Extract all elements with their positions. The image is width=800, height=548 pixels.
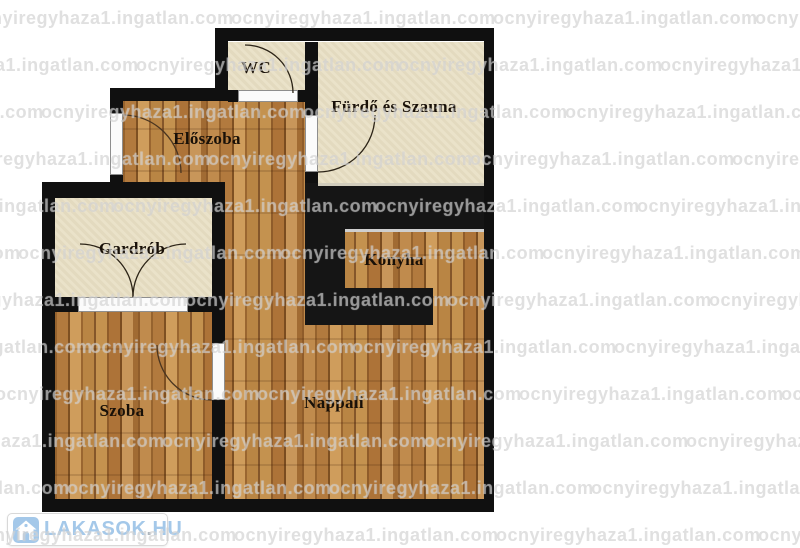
watermark-text: ocnyiregyhaza1.ingatlan.com: [162, 431, 427, 452]
watermark-text: ocnyiregyhaza1.ingatlan.com: [542, 243, 800, 264]
watermark-layer: ocnyiregyhaza1.ingatlan.comocnyiregyhaza…: [0, 0, 800, 548]
watermark-text: ocnyiregyhaza1.ingatlan.com: [755, 8, 800, 29]
watermark-text: ocnyiregyhaza1.ingatlan.com: [591, 478, 800, 499]
watermark-text: ocnyiregyhaza1.ingatlan.com: [257, 384, 522, 405]
watermark-text: ocnyiregyhaza1.ingatlan.com: [493, 8, 758, 29]
watermark-text: ocnyiregyhaza1.ingatlan.com: [0, 431, 165, 452]
floor-plan-image: WC Fürdő és Szauna Előszoba Gardrób Kony…: [0, 0, 800, 548]
watermark-text: ocnyiregyhaza1.ingatlan.com: [686, 431, 800, 452]
watermark-text: ocnyiregyhaza1.ingatlan.com: [113, 196, 378, 217]
watermark-text: ocnyiregyhaza1.ingatlan.com: [709, 290, 800, 311]
watermark-text: ocnyiregyhaza1.ingatlan.com: [280, 243, 545, 264]
watermark-text: ocnyiregyhaza1.ingatlan.com: [329, 478, 594, 499]
watermark-text: ocnyiregyhaza1.ingatlan.com: [424, 431, 689, 452]
watermark-text: ocnyiregyhaza1.ingatlan.com: [0, 196, 116, 217]
watermark-text: ocnyiregyhaza1.ingatlan.com: [231, 8, 496, 29]
watermark-text: ocnyiregyhaza1.ingatlan.com: [0, 55, 139, 76]
watermark-text: ocnyiregyhaza1.ingatlan.com: [519, 384, 784, 405]
watermark-text: ocnyiregyhaza1.ingatlan.com: [0, 337, 93, 358]
watermark-text: ocnyiregyhaza1.ingatlan.com: [234, 525, 499, 546]
watermark-text: ocnyiregyhaza1.ingatlan.com: [398, 55, 663, 76]
watermark-text: ocnyiregyhaza1.ingatlan.com: [0, 384, 260, 405]
watermark-text: ocnyiregyhaza1.ingatlan.com: [0, 102, 44, 123]
watermark-text: ocnyiregyhaza1.ingatlan.com: [0, 290, 188, 311]
watermark-text: ocnyiregyhaza1.ingatlan.com: [352, 337, 617, 358]
watermark-text: ocnyiregyhaza1.ingatlan.com: [732, 149, 800, 170]
watermark-text: ocnyiregyhaza1.ingatlan.com: [41, 102, 306, 123]
watermark-text: ocnyiregyhaza1.ingatlan.com: [208, 149, 473, 170]
watermark-text: ocnyiregyhaza1.ingatlan.com: [0, 525, 237, 546]
watermark-text: ocnyiregyhaza1.ingatlan.com: [136, 55, 401, 76]
watermark-text: ocnyiregyhaza1.ingatlan.com: [496, 525, 761, 546]
watermark-text: ocnyiregyhaza1.ingatlan.com: [637, 196, 800, 217]
watermark-text: ocnyiregyhaza1.ingatlan.com: [470, 149, 735, 170]
watermark-text: ocnyiregyhaza1.ingatlan.com: [758, 525, 800, 546]
watermark-text: ocnyiregyhaza1.ingatlan.com: [0, 149, 211, 170]
watermark-text: ocnyiregyhaza1.ingatlan.com: [660, 55, 800, 76]
watermark-text: ocnyiregyhaza1.ingatlan.com: [447, 290, 712, 311]
watermark-text: ocnyiregyhaza1.ingatlan.com: [18, 243, 283, 264]
watermark-text: ocnyiregyhaza1.ingatlan.com: [375, 196, 640, 217]
watermark-text: ocnyiregyhaza1.ingatlan.com: [0, 478, 70, 499]
watermark-text: ocnyiregyhaza1.ingatlan.com: [565, 102, 800, 123]
watermark-text: ocnyiregyhaza1.ingatlan.com: [781, 384, 800, 405]
watermark-text: ocnyiregyhaza1.ingatlan.com: [90, 337, 355, 358]
watermark-text: ocnyiregyhaza1.ingatlan.com: [67, 478, 332, 499]
watermark-text: ocnyiregyhaza1.ingatlan.com: [0, 8, 234, 29]
watermark-text: ocnyiregyhaza1.ingatlan.com: [185, 290, 450, 311]
watermark-text: ocnyiregyhaza1.ingatlan.com: [614, 337, 800, 358]
watermark-text: ocnyiregyhaza1.ingatlan.com: [303, 102, 568, 123]
